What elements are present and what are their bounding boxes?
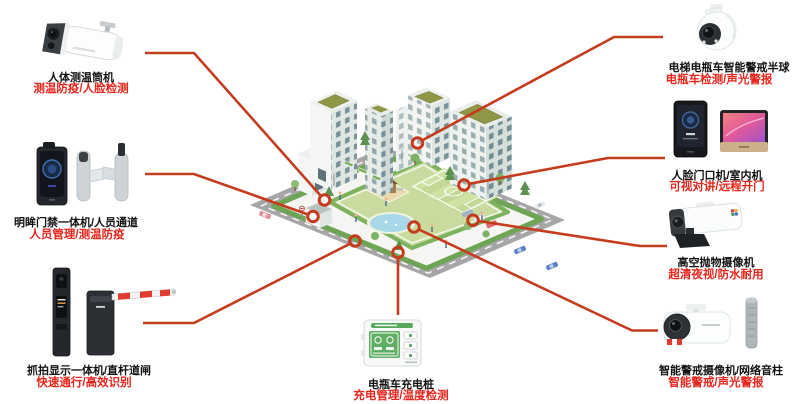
pond: [367, 212, 415, 234]
door-station-subtitle: 可视对讲/远程开门: [669, 178, 764, 194]
community-illustration: [236, 76, 576, 308]
warning-camera-subtitle: 智能警戒/声光警报: [668, 374, 763, 390]
smart-warning-dome-camera-image: [683, 4, 751, 52]
smart-community-diagram: 人体测温筒机 测温防疫/人脸检测 明眸门禁一体机/人员通道 人员管理/测温防疫 …: [0, 0, 800, 404]
face-door-station: [674, 101, 707, 157]
network-sound-column: [746, 298, 757, 348]
building-b: [365, 103, 393, 196]
capture-display-pillar: [53, 268, 70, 356]
barrier-gate-subtitle: 快速通行/高效识别: [36, 374, 131, 390]
thermal-camera-subtitle: 测温防疫/人脸检测: [33, 80, 128, 96]
face-door-station-indoor-monitor-image: [668, 98, 776, 160]
warning-dome-subtitle: 电瓶车检测/声光警报: [666, 71, 773, 87]
high-altitude-throwing-camera-image: [668, 200, 752, 252]
face-access-terminal: [37, 142, 67, 205]
high-altitude-camera-subtitle: 超清夜视/防水耐用: [668, 266, 763, 282]
warning-bullet-camera: [664, 304, 730, 345]
ebike-charging-pile-image: [361, 316, 425, 370]
barrier-gate: [87, 289, 176, 355]
smart-warning-bullet-camera-sound-column-image: [660, 294, 762, 354]
face-access-terminal-turnstile-image: [35, 141, 135, 209]
turnstile: [77, 143, 128, 201]
indoor-monitor: [720, 110, 768, 152]
building-e: [450, 100, 512, 200]
charging-pile-subtitle: 充电管理/温度检测: [353, 387, 448, 403]
capture-display-pillar-barrier-gate-image: [50, 266, 176, 358]
thermal-bullet-camera-image: [36, 14, 128, 74]
access-terminal-subtitle: 人员管理/测温防疫: [29, 226, 124, 242]
